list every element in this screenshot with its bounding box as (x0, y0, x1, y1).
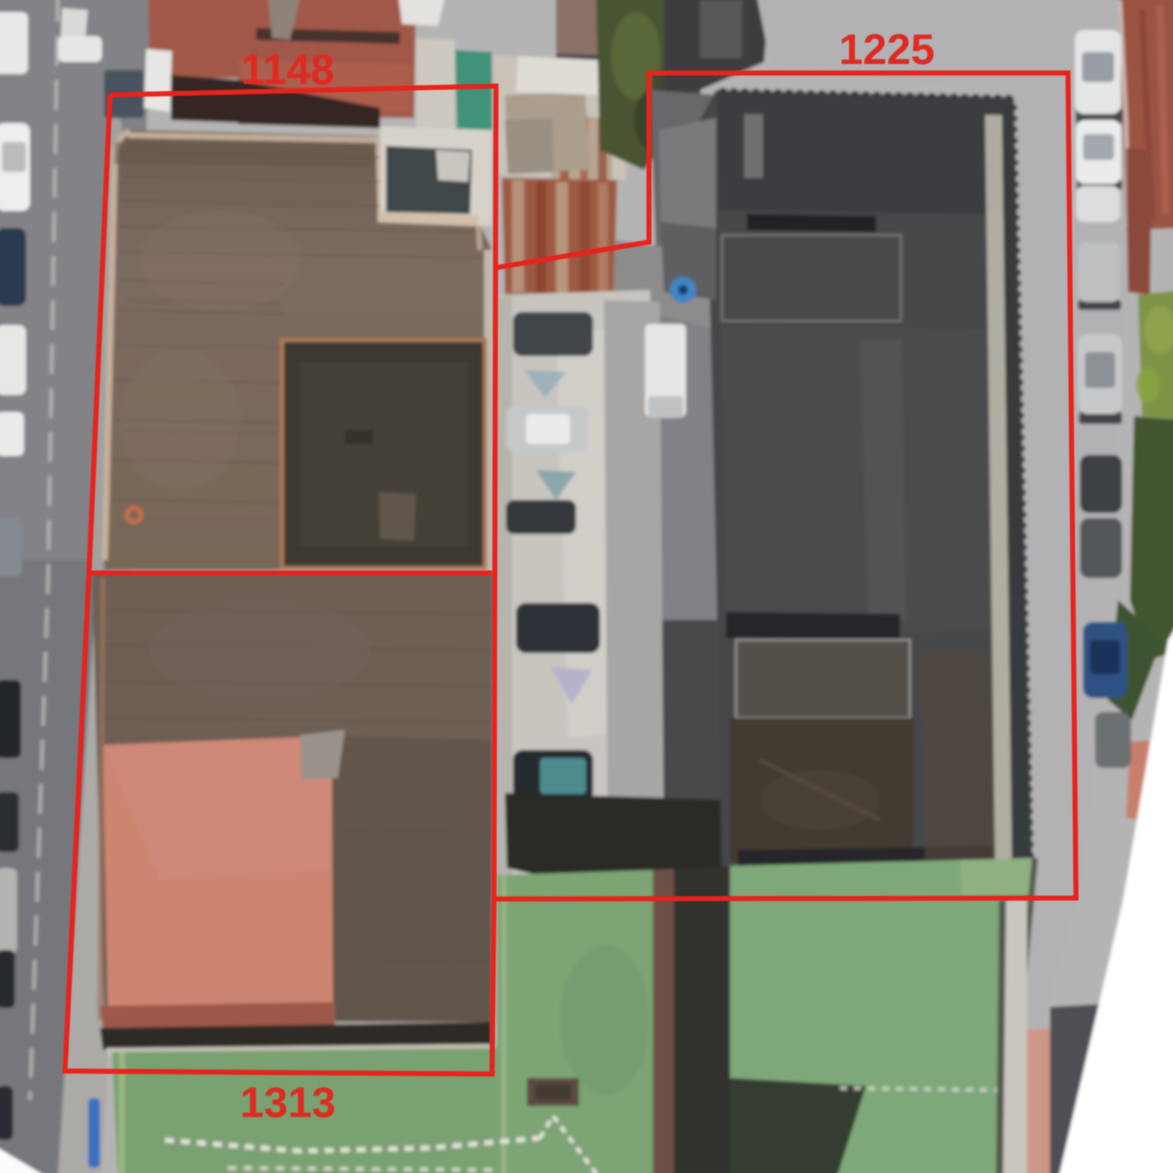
svg-text:1313: 1313 (240, 1079, 336, 1127)
svg-text:1225: 1225 (839, 26, 935, 74)
svg-text:1148: 1148 (241, 46, 334, 94)
